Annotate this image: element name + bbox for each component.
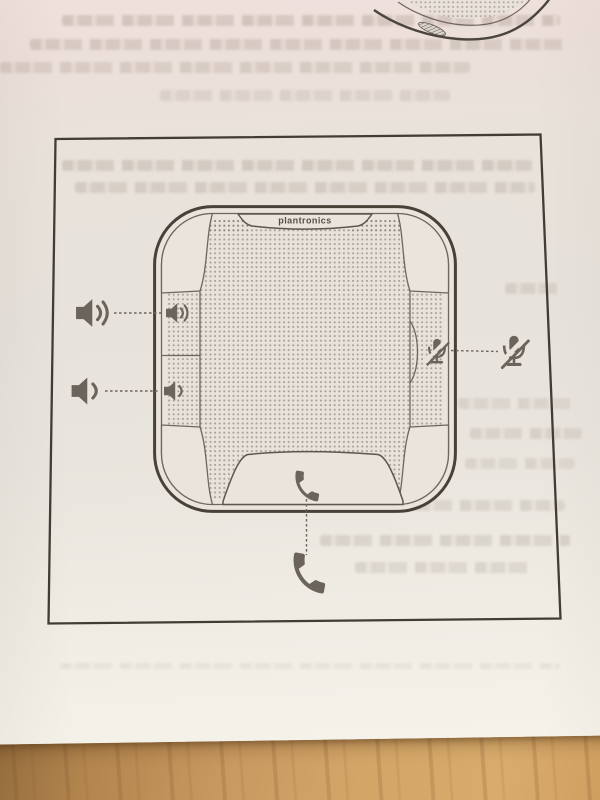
brand-label: plantronics — [278, 216, 331, 226]
phone-handset-callout-icon — [288, 552, 330, 594]
previous-figure-fragment — [374, 0, 550, 39]
volume-up-callout-icon — [76, 299, 107, 327]
speakerphone-top-view: plantronics — [155, 207, 456, 512]
leader-line-mute — [451, 351, 498, 352]
manual-page-photo: plantronics — [0, 0, 600, 800]
volume-down-callout-icon — [72, 378, 97, 405]
mic-mute-callout-icon — [499, 336, 528, 368]
diagram-artwork: plantronics — [0, 0, 600, 800]
